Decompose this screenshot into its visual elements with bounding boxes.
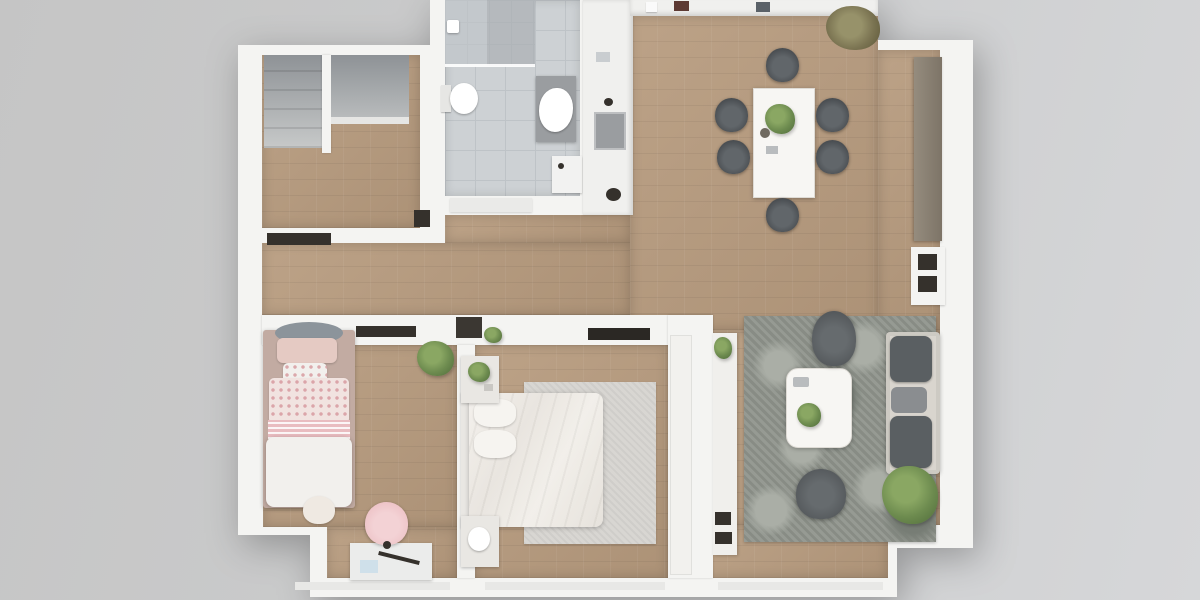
- kids-duvet-white: [266, 437, 352, 507]
- kids-plant: [417, 341, 454, 376]
- kids-pillow-pink: [277, 338, 337, 363]
- floor-plan-canvas: [0, 0, 1200, 600]
- kids-wall-shelf: [356, 326, 416, 337]
- kids-desk-chair: [365, 502, 408, 545]
- desk-paper: [360, 560, 378, 573]
- kids-bedroom-layer: [0, 0, 1200, 600]
- kids-chair-leg: [383, 541, 391, 549]
- teddy-bear: [303, 496, 335, 524]
- kids-duvet-dotted: [269, 378, 349, 424]
